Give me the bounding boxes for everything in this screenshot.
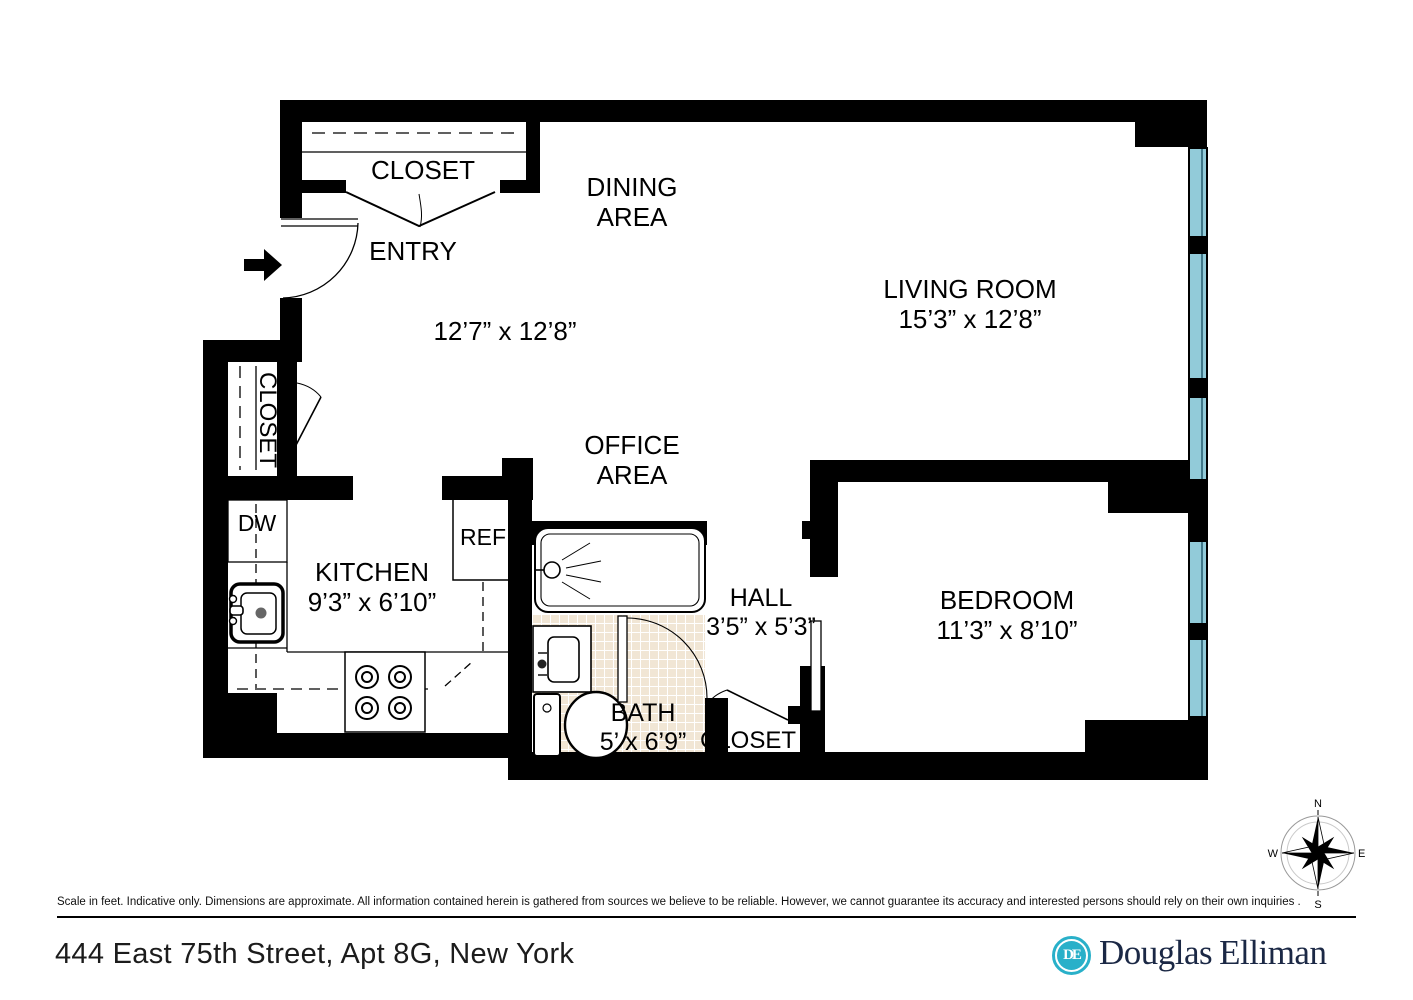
office-area-label: OFFICE AREA	[584, 430, 679, 490]
kitchen-name: KITCHEN	[308, 557, 437, 587]
entry-dining-dimensions: 12’7” x 12’8”	[433, 316, 576, 346]
address-title: 444 East 75th Street, Apt 8G, New York	[55, 938, 574, 971]
wall	[203, 476, 353, 500]
wall	[203, 733, 513, 758]
window-glass	[1188, 252, 1208, 380]
hall-dimensions: 3’5” x 5’3”	[706, 613, 816, 642]
window-pane-line	[1201, 149, 1203, 236]
wall	[1108, 460, 1188, 513]
wall	[1135, 100, 1207, 147]
office-line1: OFFICE	[584, 430, 679, 460]
bath-name: BATH	[600, 699, 687, 728]
bath-label: BATH 5’ x 6’9”	[600, 699, 687, 757]
dishwasher-label: DW	[238, 510, 276, 537]
hall-name: HALL	[706, 584, 816, 613]
entry-door	[281, 219, 358, 298]
monogram-disc: DE	[1057, 941, 1086, 970]
footer-divider	[57, 916, 1356, 918]
brand-name-1: Douglas	[1099, 933, 1212, 972]
window-pane-line	[1201, 254, 1203, 378]
wall	[1188, 625, 1208, 638]
compass-south-label: S	[1314, 899, 1321, 911]
office-line2: AREA	[584, 460, 679, 490]
living-room-dimensions: 15’3” x 12’8”	[883, 304, 1056, 334]
bath-dimensions: 5’ x 6’9”	[600, 728, 687, 757]
entry-closet-label: CLOSET	[371, 155, 475, 185]
window-glass	[1188, 396, 1208, 481]
bedroom-name: BEDROOM	[936, 585, 1077, 615]
side-closet-label: CLOSET	[253, 372, 281, 468]
compass-north-label: N	[1314, 798, 1322, 810]
wall	[1188, 380, 1208, 396]
dining-area-label: DINING AREA	[587, 172, 678, 232]
wall	[532, 521, 707, 545]
wall	[508, 752, 1088, 780]
window-pane-line	[1201, 398, 1203, 479]
wall	[280, 100, 1207, 122]
wall	[1188, 481, 1208, 540]
entry-label: ENTRY	[369, 236, 457, 266]
wall	[800, 666, 825, 758]
kitchen-label: KITCHEN 9’3” x 6’10”	[308, 557, 437, 617]
wall	[802, 521, 810, 539]
stove	[345, 652, 425, 732]
wall	[203, 693, 277, 733]
disclaimer-text: Scale in feet. Indicative only. Dimensio…	[57, 896, 1301, 908]
kitchen-dimensions: 9’3” x 6’10”	[308, 587, 437, 617]
window-glass	[1188, 540, 1208, 625]
refrigerator-label: REF	[460, 524, 506, 551]
living-room-label: LIVING ROOM 15’3” x 12’8”	[883, 274, 1056, 334]
window-glass	[1188, 638, 1208, 718]
window-pane-line	[1201, 640, 1203, 716]
wall	[1188, 238, 1208, 252]
monogram-letters: DE	[1063, 947, 1080, 964]
entry-arrow-icon	[244, 249, 282, 281]
hall-closet-label: CLOSET	[700, 727, 796, 755]
wall	[1188, 718, 1208, 780]
wall	[302, 180, 346, 193]
window-glass	[1188, 147, 1208, 238]
compass-icon: N S E W	[1268, 798, 1366, 911]
floorplan-page: N S E W CLOSET DINING AREA ENTRY 12’7” x…	[0, 0, 1413, 1000]
kitchen-sink	[230, 584, 284, 642]
douglas-elliman-wordmark: DouglasElliman	[1099, 933, 1326, 973]
bedroom-dimensions: 11’3” x 8’10”	[936, 615, 1077, 645]
brand-name-2: Elliman	[1219, 933, 1326, 972]
hall-label: HALL 3’5” x 5’3”	[706, 584, 816, 642]
compass-east-label: E	[1358, 848, 1365, 860]
dining-line1: DINING	[587, 172, 678, 202]
douglas-elliman-monogram-icon: DE	[1052, 936, 1091, 975]
wall	[788, 706, 802, 724]
bedroom-label: BEDROOM 11’3” x 8’10”	[936, 585, 1077, 645]
dining-line2: AREA	[587, 202, 678, 232]
wall	[280, 100, 302, 218]
wall	[810, 460, 1110, 482]
wall	[526, 122, 540, 193]
wall	[508, 476, 532, 776]
compass-west-label: W	[1268, 848, 1279, 860]
window-pane-line	[1201, 542, 1203, 623]
living-room-name: LIVING ROOM	[883, 274, 1056, 304]
